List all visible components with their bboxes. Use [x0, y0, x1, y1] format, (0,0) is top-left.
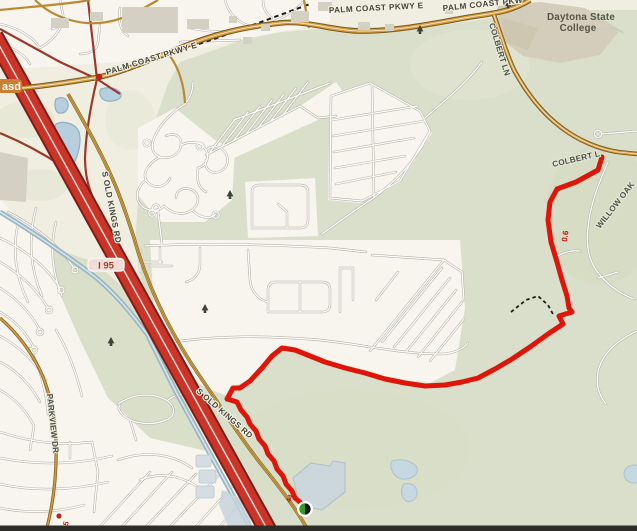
- svg-text:Daytona State: Daytona State: [547, 12, 615, 23]
- svg-text:I 95: I 95: [98, 261, 115, 272]
- svg-text:College: College: [560, 23, 597, 34]
- svg-text:0.6: 0.6: [560, 230, 570, 243]
- svg-text:asd: asd: [2, 81, 21, 93]
